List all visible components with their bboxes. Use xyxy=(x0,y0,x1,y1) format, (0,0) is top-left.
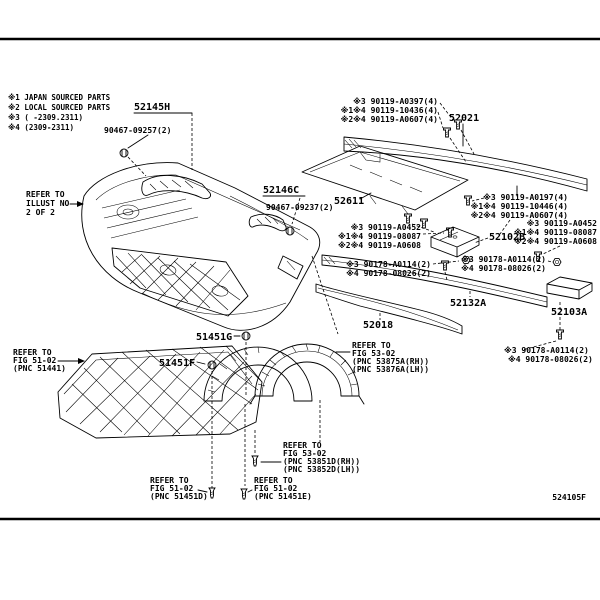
fastener-label: ※2※4 90119-A0608 xyxy=(514,236,597,246)
bolt-icon xyxy=(444,128,451,137)
bracket-52103a-part xyxy=(547,277,592,299)
ref-line: (PNC 53852D(LH)) xyxy=(283,465,360,474)
fastener-pair-bottom: ※3 90178-A0114(2) ※4 90178-08026(2) xyxy=(504,345,593,364)
label-52146c: 52146C xyxy=(263,185,299,196)
clip-icon xyxy=(286,227,294,235)
fog-lamp-hole xyxy=(211,285,228,298)
legend-line-4: ※4 (2309-2311) xyxy=(8,123,74,132)
legend-line-3: ※3 ( -2309.2311) xyxy=(8,113,83,122)
seal-52018-group: 52018 xyxy=(316,284,462,334)
ref-line: (PNC 51441) xyxy=(13,364,66,373)
ref-liner-seal: REFER TO FIG 53-02 (PNC 53851D(RH)) (PNC… xyxy=(252,400,360,474)
bracket-52103a-group: 52103A xyxy=(522,277,592,350)
upper-grille-slats xyxy=(102,190,198,238)
label-51451g: 51451G xyxy=(196,332,232,343)
clip-51451g-group: 51451G xyxy=(196,332,250,486)
figure-code: 524105F xyxy=(552,493,586,502)
extension-52102b-part xyxy=(431,227,479,257)
bracket-52146c-group: 52146C 90467-09237(2) xyxy=(249,185,333,235)
ref-illust-line-2: ILLUST NO xyxy=(26,199,70,208)
fastener-label: ※1※4 90119-10436(4) xyxy=(341,105,438,115)
fastener-set-mid-left: ※3 90119-A0452 ※1※4 90119-08087 ※2※4 901… xyxy=(338,222,453,250)
front-bumper-parts-diagram: ※1 JAPAN SOURCED PARTS ※2 LOCAL SOURCED … xyxy=(0,0,600,600)
legend-line-2: ※2 LOCAL SOURCED PARTS xyxy=(8,103,111,112)
ref-cover-d: REFER TO FIG 51-02 (PNC 51451D) xyxy=(150,476,215,501)
fastener-label: ※3 90119-A0452 xyxy=(351,222,422,232)
fastener-pair-right: ※3 90178-A0114(2) ※4 90178-08026(2) xyxy=(461,254,561,273)
bracket-52145h-part xyxy=(142,175,211,198)
clip-icon xyxy=(242,332,250,340)
ref-cover-e: REFER TO FIG 51-02 (PNC 51451E) xyxy=(241,476,312,501)
ref-illust-line-3: 2 OF 2 xyxy=(26,208,55,217)
label-52018: 52018 xyxy=(363,320,393,331)
label-52102b: 52102B xyxy=(489,232,525,243)
label-90467-09257: 90467-09257(2) xyxy=(104,126,171,135)
corner-vent xyxy=(278,256,303,279)
ref-line: (PNC 53876A(LH)) xyxy=(352,365,429,374)
leader-bumper-to-liner xyxy=(312,256,338,334)
bolt-icon xyxy=(405,214,412,223)
fastener-label: ※2※4 90119-A0607(4) xyxy=(341,114,438,124)
emblem xyxy=(117,205,139,219)
screw-icon xyxy=(209,488,215,498)
screw-icon xyxy=(252,456,258,466)
plate-52611-group: 52611 xyxy=(302,146,468,232)
fastener-label: ※3 90119-A0197(4) xyxy=(483,192,568,202)
ref-line: (PNC 51451D) xyxy=(150,492,208,501)
bolt-icon xyxy=(421,219,428,228)
ref-illust-line-1: REFER TO xyxy=(26,190,65,199)
bracket-52145h-group: 52145H 90467-09257(2) xyxy=(104,102,211,199)
fastener-label: ※4 90178-08026(2) xyxy=(461,263,546,273)
fastener-label: ※2※4 90119-A0608 xyxy=(338,240,421,250)
label-52611: 52611 xyxy=(334,196,364,207)
fastener-label: ※1※4 90119-08087 xyxy=(338,231,421,241)
fastener-label: ※1※4 90119-08087 xyxy=(514,227,597,237)
fastener-label: ※3 90178-A0114(2) xyxy=(461,254,546,264)
bolt-icon xyxy=(455,120,462,129)
fastener-label: ※3 90119-A0452 xyxy=(527,218,598,228)
label-52145h: 52145H xyxy=(134,102,170,113)
reinforcement-52021-part xyxy=(344,137,587,191)
nut-icon xyxy=(553,259,561,266)
label-90467-09237: 90467-09237(2) xyxy=(266,203,333,212)
legend-line-1: ※1 JAPAN SOURCED PARTS xyxy=(8,93,111,102)
screw-icon xyxy=(241,489,247,499)
fastener-label: ※3 90119-A0397(4) xyxy=(353,96,438,106)
clip-icon xyxy=(208,361,216,369)
legend: ※1 JAPAN SOURCED PARTS ※2 LOCAL SOURCED … xyxy=(8,93,111,132)
label-52103a: 52103A xyxy=(551,307,587,318)
ref-line: (PNC 51451E) xyxy=(254,492,312,501)
bolt-icon xyxy=(557,330,564,339)
ref-illust: REFER TO ILLUST NO 2 OF 2 xyxy=(26,190,84,217)
ref-fender-liner: REFER TO FIG 53-02 (PNC 53875A(RH)) (PNC… xyxy=(336,341,429,374)
plate-52611-part xyxy=(302,146,468,210)
label-52021: 52021 xyxy=(449,113,479,124)
fastener-label: ※1※4 90119-10446(4) xyxy=(471,201,568,211)
fastener-label: ※4 90178-08026(2) xyxy=(508,354,593,364)
label-52132a: 52132A xyxy=(450,298,486,309)
clip-icon xyxy=(120,149,128,157)
parts-catalog-page: ※1 JAPAN SOURCED PARTS ※2 LOCAL SOURCED … xyxy=(0,0,600,600)
fender-liner-drawing xyxy=(204,344,364,404)
ref-under-cover: REFER TO FIG 51-02 (PNC 51441) xyxy=(13,348,85,373)
fastener-label: ※3 90178-A0114(2) xyxy=(504,345,589,355)
